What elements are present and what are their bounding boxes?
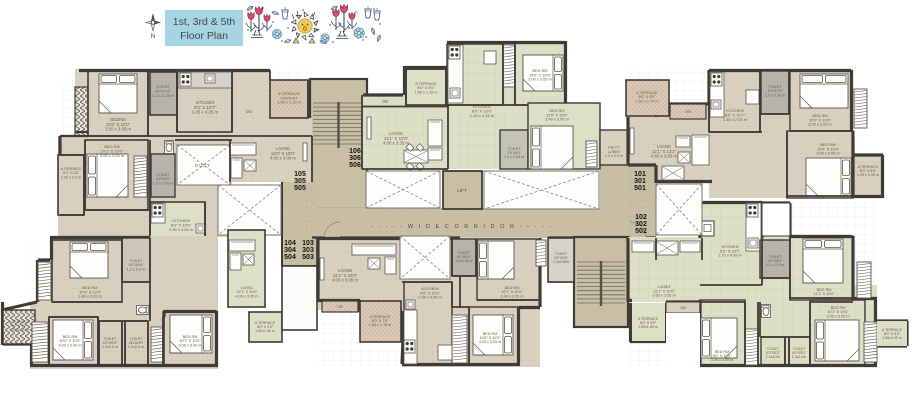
svg-text:A TERRACE8'0" X 5'0"1.55x2.05: A TERRACE8'0" X 5'0"1.55x2.05 m <box>882 328 903 340</box>
svg-text:TOILET4'0"X5'0"1.2x2.0m: TOILET4'0"X5'0"1.2x2.0m <box>792 347 807 359</box>
svg-text:104304504: 104304504 <box>284 240 296 261</box>
svg-text:105305505: 105305505 <box>294 171 306 192</box>
svg-text:TOILET4'0"X6'6"1.2x2.05m: TOILET4'0"X6'6"1.2x2.05m <box>553 252 569 264</box>
svg-text:A TERRACE8'0" X 5'0"1.55 x 1.1: A TERRACE8'0" X 5'0"1.55 x 1.15 m <box>414 82 437 94</box>
svg-text:106306506: 106306506 <box>349 148 361 169</box>
svg-text:A TERRACE8'0" X 5'0"1.52 x 1.7: A TERRACE8'0" X 5'0"1.52 x 1.70 m <box>635 91 658 103</box>
svg-text:TOILET4'0"X6'5"1.2x2.0 m: TOILET4'0"X6'5"1.2x2.0 m <box>102 337 118 349</box>
svg-text:- - - - - W I D E C O R R I: - - - - - W I D E C O R R I D O R - - - … <box>371 224 553 230</box>
svg-text:A TERRACE8'0" X 5'0"1.50x1.50: A TERRACE8'0" X 5'0"1.50x1.50 m <box>638 317 659 329</box>
svg-text:A TERRACE8'0" X 5'0"1.25 x 2.0: A TERRACE8'0" X 5'0"1.25 x 2.05 m <box>857 165 879 177</box>
svg-text:103303503: 103303503 <box>302 240 314 261</box>
svg-text:A TERRACEOVEN BT1.50 x 1.20 m: A TERRACEOVEN BT1.50 x 1.20 m <box>277 91 301 105</box>
svg-text:CB: CB <box>337 305 343 309</box>
svg-text:OB: OB <box>382 99 388 104</box>
svg-text:A TERRACE8'0" X 5'0"1.50x1.50: A TERRACE8'0" X 5'0"1.50x1.50 m <box>255 321 276 333</box>
svg-text:1st, 3rd & 5th: 1st, 3rd & 5th <box>173 16 236 28</box>
svg-text:TOILET4'0"X5'0"1.2 x 2.0 m: TOILET4'0"X5'0"1.2 x 2.0 m <box>766 255 784 267</box>
svg-text:OB: OB <box>685 109 691 114</box>
svg-text:KITCHEN8'0" X 16'7"2.75 x 4.95: KITCHEN8'0" X 16'7"2.75 x 4.95 m <box>718 244 742 258</box>
svg-text:DUCT: DUCT <box>195 163 211 168</box>
svg-text:TOILET4'0"X6'6"1.2 x 2.0 m: TOILET4'0"X6'6"1.2 x 2.0 m <box>127 259 146 271</box>
svg-text:A TERRACE8'0" X 5'0"1.25x1.15: A TERRACE8'0" X 5'0"1.25x1.15 m <box>9 320 30 332</box>
svg-text:DO: DO <box>246 109 253 114</box>
svg-text:LIFT: LIFT <box>457 188 467 193</box>
svg-text:TOILETADJUST1.2x2.0 m: TOILETADJUST1.2x2.0 m <box>128 337 144 349</box>
svg-text:Floor Plan: Floor Plan <box>180 30 228 42</box>
svg-text:101301501: 101301501 <box>634 171 646 192</box>
svg-text:N: N <box>151 33 156 40</box>
svg-text:TOILET4'0"X6'6"1.2x2.05 m: TOILET4'0"X6'6"1.2x2.05 m <box>455 251 473 263</box>
svg-text:OB: OB <box>680 306 686 310</box>
svg-text:A TERRACE8'0" X 7'0"1.95 x 1.7: A TERRACE8'0" X 7'0"1.95 x 1.75 m <box>369 315 391 327</box>
svg-text:TOILET4'0"X5'0"1.2x2.0m: TOILET4'0"X5'0"1.2x2.0m <box>766 347 781 359</box>
svg-text:KITCHEN8'0" X 12'3"2.45 x 4.05: KITCHEN8'0" X 12'3"2.45 x 4.05 m <box>418 286 442 300</box>
